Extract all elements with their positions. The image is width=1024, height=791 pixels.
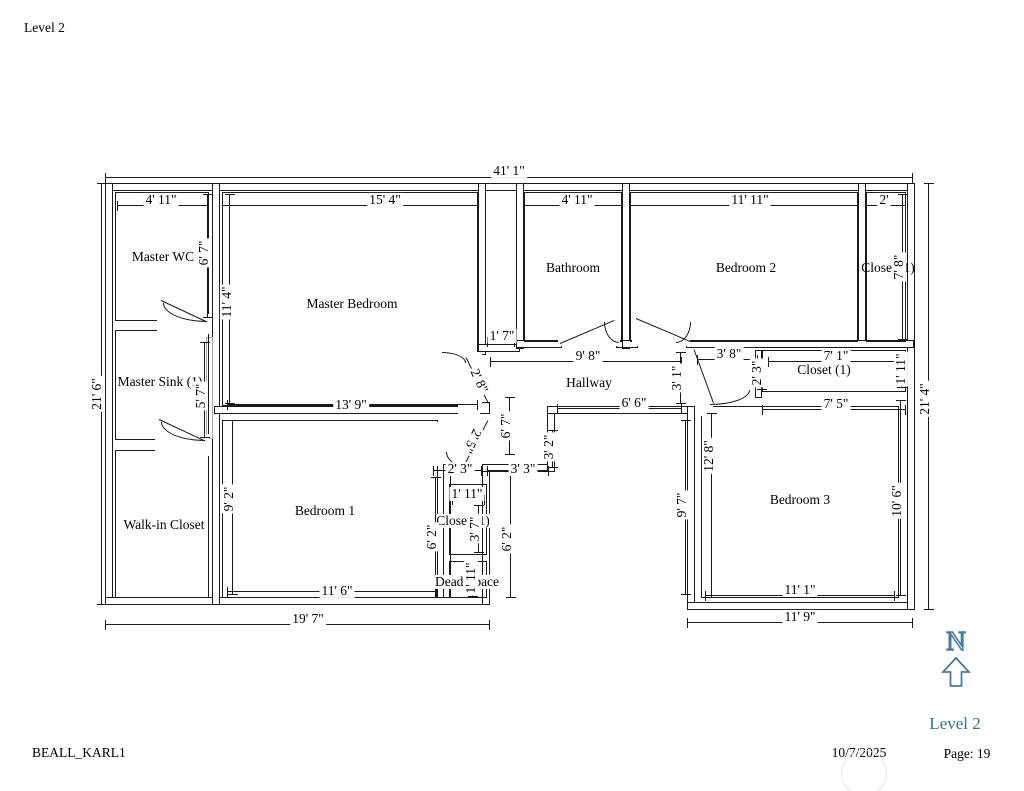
wall-left-column-divider — [212, 183, 220, 605]
dim-hallway-width-lower: 6' 6" — [620, 396, 649, 410]
floor-plan-page: Level 2 BEALL_KARL1 10/7/2025 Page: 19 L… — [0, 0, 1024, 791]
dim-closet-top-right-width: 2' — [877, 193, 890, 207]
dim-master-sink-height: 5' 7" — [194, 382, 208, 411]
dim-bedroom3-height-inner: 12' 8" — [702, 438, 716, 474]
dim-column-height-left: 6' 2" — [425, 523, 439, 552]
north-arrow-icon — [943, 658, 969, 686]
dim-closet-center-width: 1' 11" — [449, 487, 484, 501]
dim-alcove-left: 2' 3" — [446, 462, 475, 476]
room-label-master-wc: Master WC — [132, 250, 194, 264]
dim-closet-right-width: 7' 1" — [822, 349, 851, 363]
footer-filename: BEALL_KARL1 — [32, 745, 126, 761]
room-label-hallway: Hallway — [566, 376, 612, 390]
room-label-closet-right-mid: Closet (1) — [797, 363, 851, 377]
dim-alcove-height: 3' 2" — [542, 433, 556, 462]
dim-bedroom3-corridor: 3' 8" — [715, 347, 744, 361]
dim-bedroom3-height-right: 10' 6" — [890, 483, 904, 519]
footer-level-label: Level 2 — [929, 714, 980, 734]
dim-alcove-right: 3' 3" — [509, 462, 538, 476]
wall-masterbedroom-right — [478, 183, 486, 355]
dim-left-height: 21' 6" — [90, 376, 104, 412]
room-label-master-sink: Master Sink (1) — [118, 375, 203, 389]
wall-bathroom-bedroom2 — [622, 183, 630, 349]
dim-master-bedroom-width: 15' 4" — [367, 193, 403, 207]
room-label-master-bedroom: Master Bedroom — [306, 297, 397, 311]
dim-bedroom3-width: 11' 1" — [782, 583, 817, 597]
dim-closet-right-bottom: 7' 5" — [822, 397, 851, 411]
room-label-closet-top-right: Closet (1) — [861, 261, 915, 275]
dim-bathroom-width: 4' 11" — [559, 193, 594, 207]
dim-master-bedroom-bottom: 13' 9" — [333, 398, 369, 412]
page-title: Level 2 — [24, 20, 65, 36]
dim-bedroom3-height-left: 9' 7" — [675, 491, 689, 520]
dim-closet-right-height: 1' 11" — [894, 351, 908, 386]
dim-line — [222, 205, 478, 206]
wall-outer-left — [105, 183, 113, 605]
wall-outer-bottom-left — [105, 597, 490, 605]
dim-dead-space-height: 1' 11" — [464, 560, 478, 595]
dim-bottom-right-width: 11' 9" — [782, 610, 817, 624]
dim-hallway-column-height: 6' 7" — [499, 412, 513, 441]
dim-right-height: 21' 4" — [918, 381, 932, 417]
dim-closet-right-gap: 2' 3" — [750, 359, 764, 388]
dim-bedroom1-height: 9' 2" — [222, 485, 236, 514]
wall-bathroom-left — [516, 183, 524, 349]
north-compass-icon: N — [934, 626, 978, 688]
dim-bedroom2-width: 11' 11" — [729, 193, 770, 207]
dim-bedroom1-width: 11' 6" — [319, 584, 354, 598]
door-opening — [432, 422, 442, 466]
room-label-bedroom3: Bedroom 3 — [770, 493, 830, 507]
dim-overall-width: 41' 1" — [491, 164, 527, 178]
room-label-walk-in-closet: Walk-in Closet — [123, 518, 204, 532]
door-arc-bedroom3 — [710, 390, 750, 405]
dim-bedroom3-door-height: 3' 1" — [670, 364, 684, 393]
room-label-bedroom1: Bedroom 1 — [295, 504, 355, 518]
dim-hallway-width: 9' 8" — [574, 349, 603, 363]
dim-closet-center-height: 3' 7" — [468, 515, 482, 544]
dim-bottom-left-width: 19' 7" — [290, 612, 326, 626]
room-label-bathroom: Bathroom — [546, 261, 600, 275]
watermark-circle — [841, 750, 887, 791]
dim-master-bedroom-height: 11' 4" — [220, 284, 234, 319]
wall-outer-right — [907, 183, 915, 610]
dim-master-wc-width: 4' 11" — [143, 193, 178, 207]
wall-outer-top — [105, 183, 913, 191]
dim-chase-width: 1' 7" — [488, 329, 517, 343]
room-label-bedroom2: Bedroom 2 — [716, 261, 776, 275]
compass-letter: N — [946, 626, 966, 656]
dim-closet-top-right-height: 7' 8" — [892, 253, 906, 282]
dim-master-wc-height: 6' 7" — [197, 239, 211, 268]
footer-page-number: Page: 19 — [944, 746, 991, 762]
dim-column-height-right: 6' 2" — [500, 525, 514, 554]
dim-door-lower: 2' 5" — [459, 425, 484, 457]
